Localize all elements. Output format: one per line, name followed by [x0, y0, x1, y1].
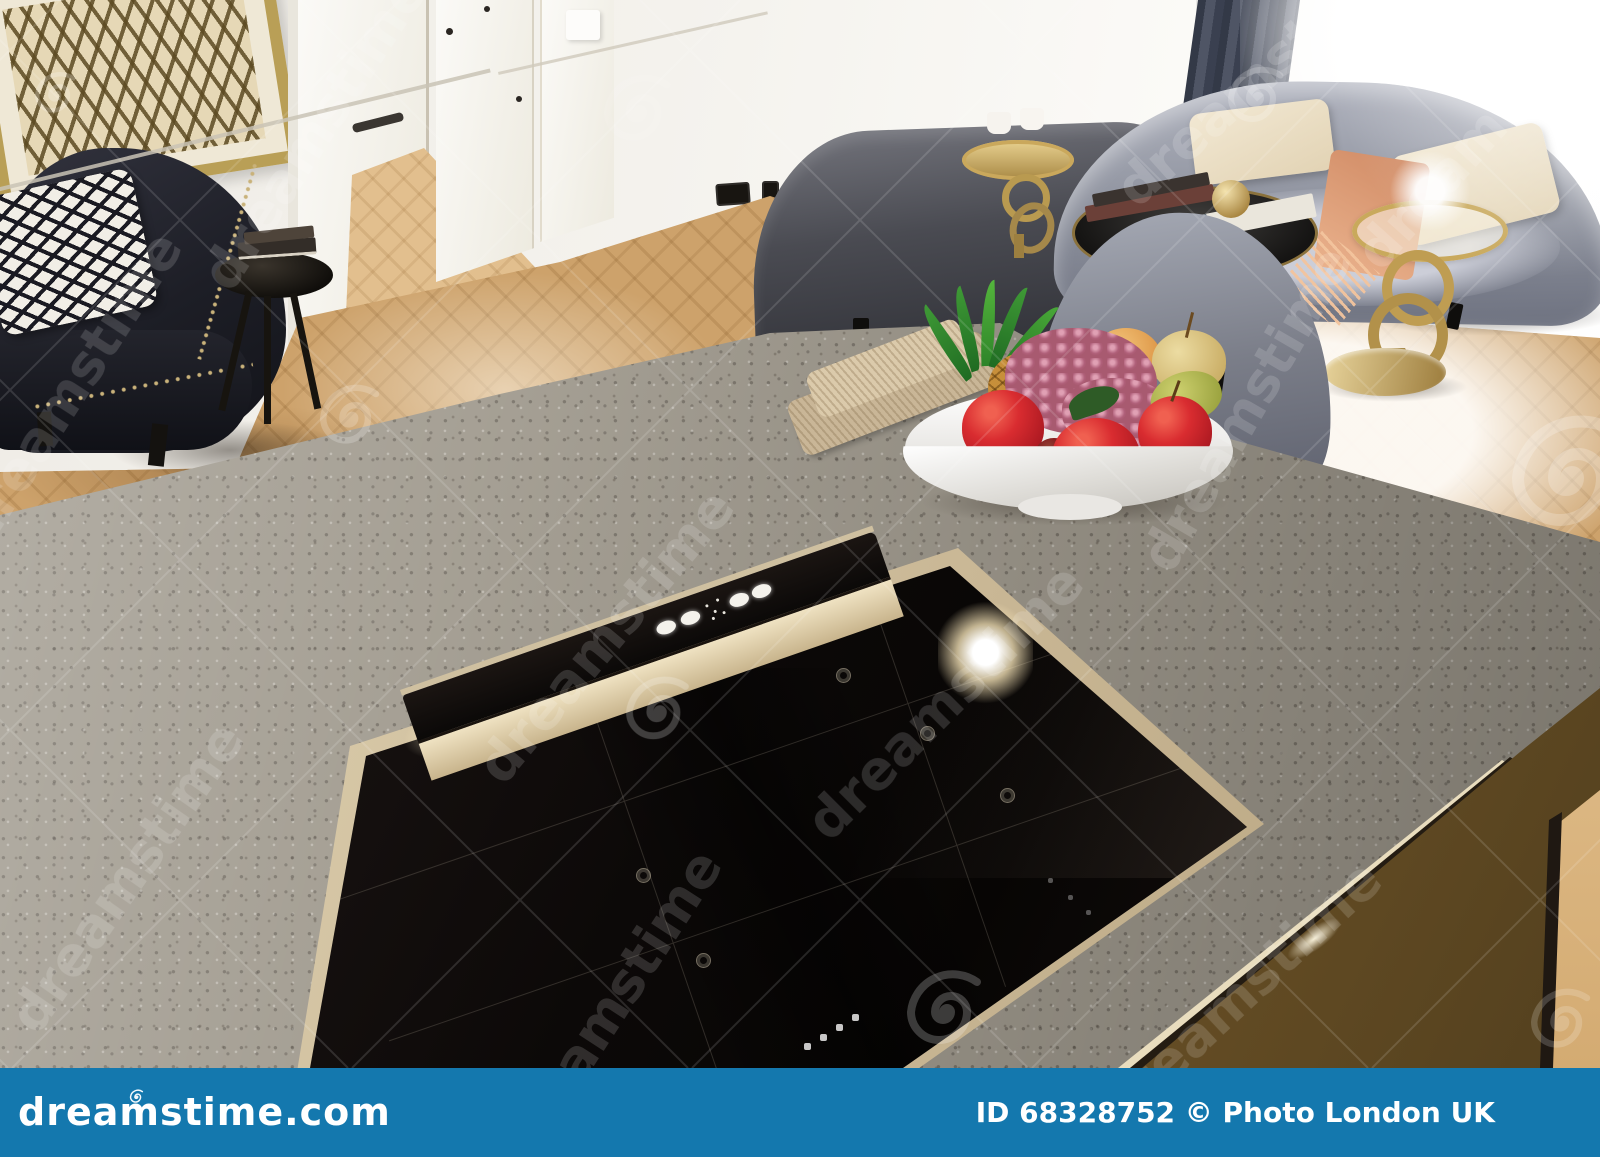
- spiral-icon: [1518, 421, 1600, 520]
- stock-photo-page: dreamstime dreamstime dreamstime dreamst…: [0, 0, 1600, 1157]
- logo-spiral-icon: [120, 1082, 154, 1110]
- watermark-word: dreamstime: [1085, 847, 1394, 1068]
- watermark-word: dreamstime: [1128, 235, 1365, 582]
- watermark-word: dreamstime: [1103, 0, 1416, 219]
- photo-credit[interactable]: ID 68328752 © Photo London UK: [976, 1096, 1495, 1129]
- spiral-icon: [608, 78, 667, 137]
- spiral-icon: [629, 680, 685, 736]
- spiral-icon: [323, 388, 376, 441]
- spiral-icon: [37, 74, 73, 110]
- dreamstime-logo[interactable]: dreamstime.com: [18, 1090, 391, 1134]
- footer-bar: dreamstime.com ID 68328752 © Photo Londo…: [0, 1068, 1600, 1157]
- watermark-word: dreamstime: [484, 838, 735, 1068]
- watermark-word: dreamstime: [0, 710, 257, 1044]
- watermark-word: dreamstime: [189, 0, 440, 302]
- watermark-overlay: dreamstime dreamstime dreamstime dreamst…: [0, 0, 1600, 1068]
- spiral-icon: [1534, 992, 1587, 1045]
- watermark-word: dreamstime: [1343, 0, 1600, 282]
- watermark-word: dreamstime: [0, 220, 195, 560]
- watermark-word: dreamstime: [794, 551, 1096, 853]
- watermark-word: dreamstime: [465, 476, 747, 795]
